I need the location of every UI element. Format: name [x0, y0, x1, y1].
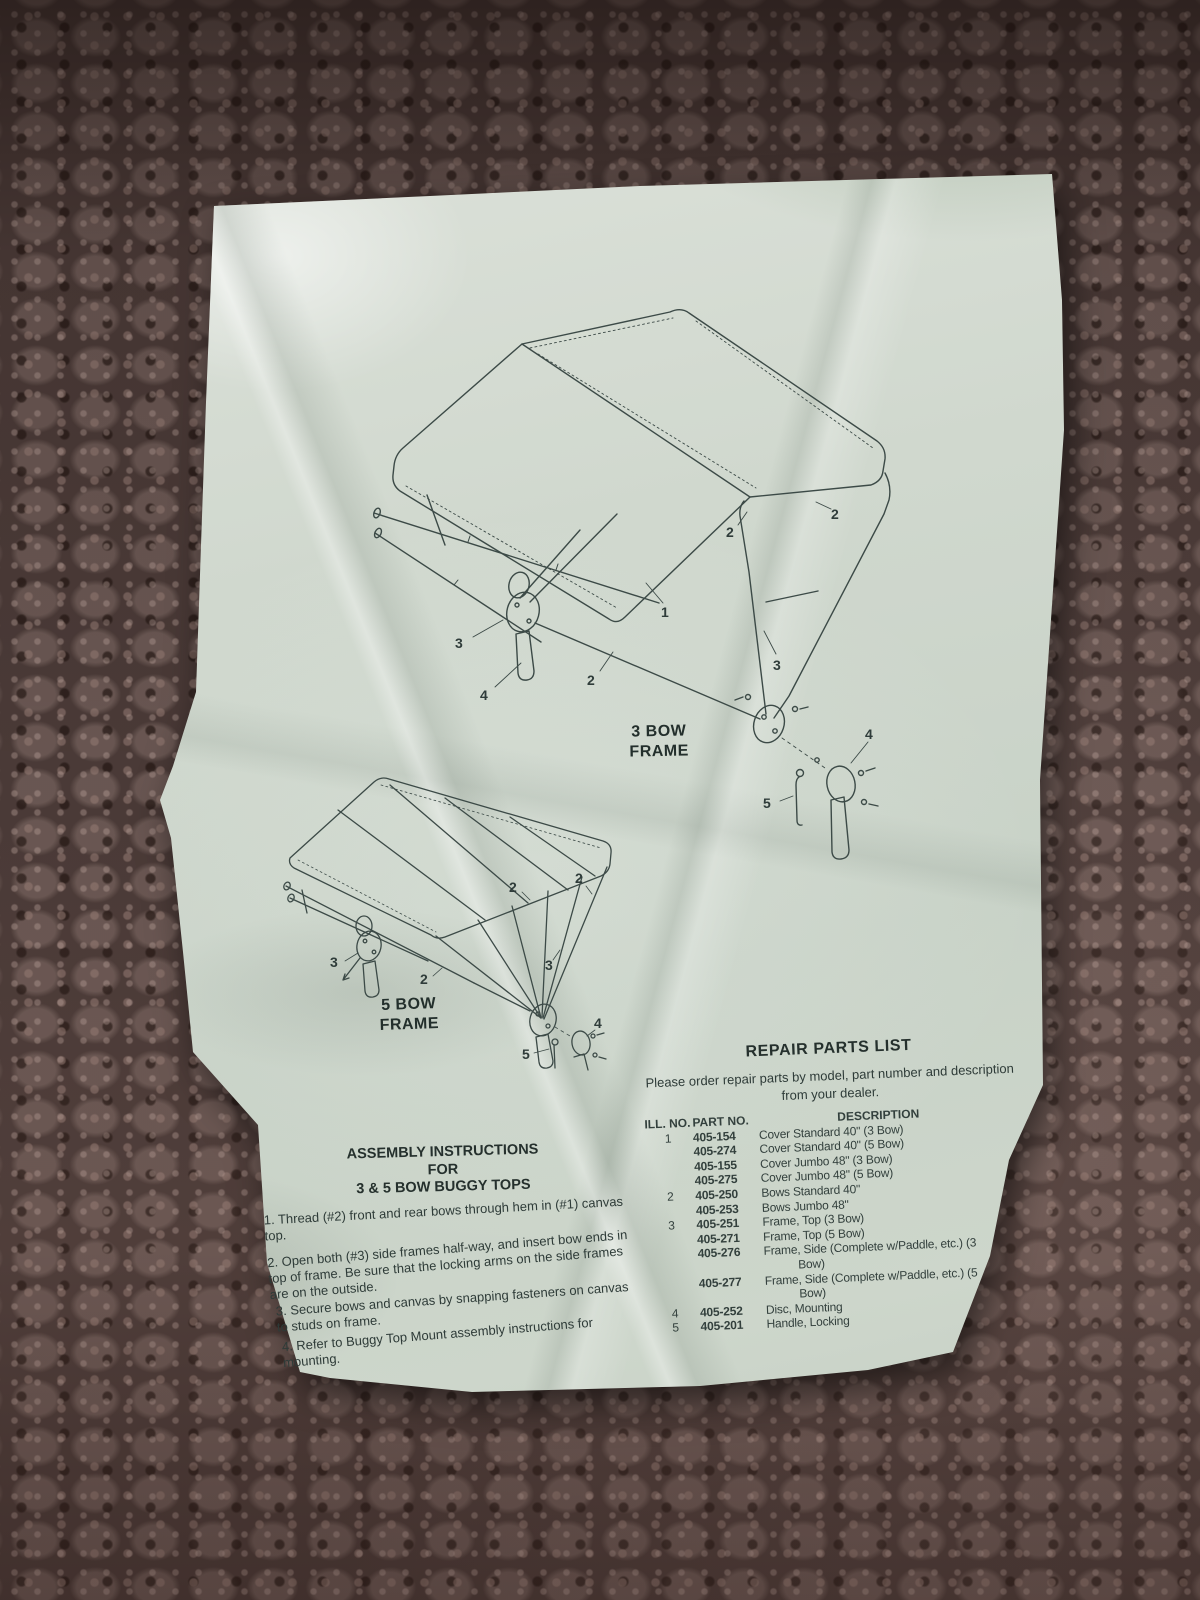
callout-number: 2 — [726, 524, 734, 540]
callout-number: 3 — [455, 635, 463, 651]
five-bow-frame-caption: 5 BOW FRAME — [358, 993, 459, 1035]
table-cell-part: 405-276 — [697, 1244, 764, 1276]
table-cell-part: 405-277 — [699, 1273, 766, 1305]
callout-number: 3 — [330, 954, 338, 970]
callout-number: 5 — [763, 795, 771, 811]
callout-number: 1 — [661, 604, 669, 620]
callout-number: 3 — [545, 957, 553, 973]
repair-parts-section: REPAIR PARTS LIST Please order repair pa… — [639, 1033, 1028, 1337]
table-cell-ill — [649, 1276, 700, 1307]
callout-number: 5 — [522, 1046, 530, 1062]
repair-parts-table: ILL. NO. PART NO. DESCRIPTION 1 405-154 … — [642, 1103, 1028, 1337]
table-cell-part: 405-201 — [700, 1317, 767, 1334]
assembly-instructions-heading: ASSEMBLY INSTRUCTIONS FOR 3 & 5 BOW BUGG… — [336, 1141, 549, 1200]
table-cell-ill — [647, 1247, 698, 1278]
callout-number: 2 — [831, 506, 839, 522]
callout-number: 4 — [865, 726, 873, 742]
callout-number: 2 — [509, 879, 517, 895]
three-bow-frame-caption: 3 BOW FRAME — [609, 721, 710, 762]
caption-line: FRAME — [359, 1013, 460, 1036]
callout-number: 4 — [480, 687, 488, 703]
callout-number: 2 — [420, 971, 428, 987]
callout-number: 2 — [575, 870, 583, 886]
table-cell-ill: 5 — [650, 1320, 701, 1337]
callout-number: 3 — [773, 657, 781, 673]
repair-parts-intro: Please order repair parts by model, part… — [643, 1060, 1016, 1110]
caption-line: 3 BOW — [609, 721, 709, 742]
photo-scene: 1 2 2 2 3 3 4 4 5 — [0, 0, 1200, 1600]
caption-line: FRAME — [609, 741, 709, 762]
callout-number: 2 — [587, 672, 595, 688]
callout-number: 4 — [594, 1015, 602, 1031]
